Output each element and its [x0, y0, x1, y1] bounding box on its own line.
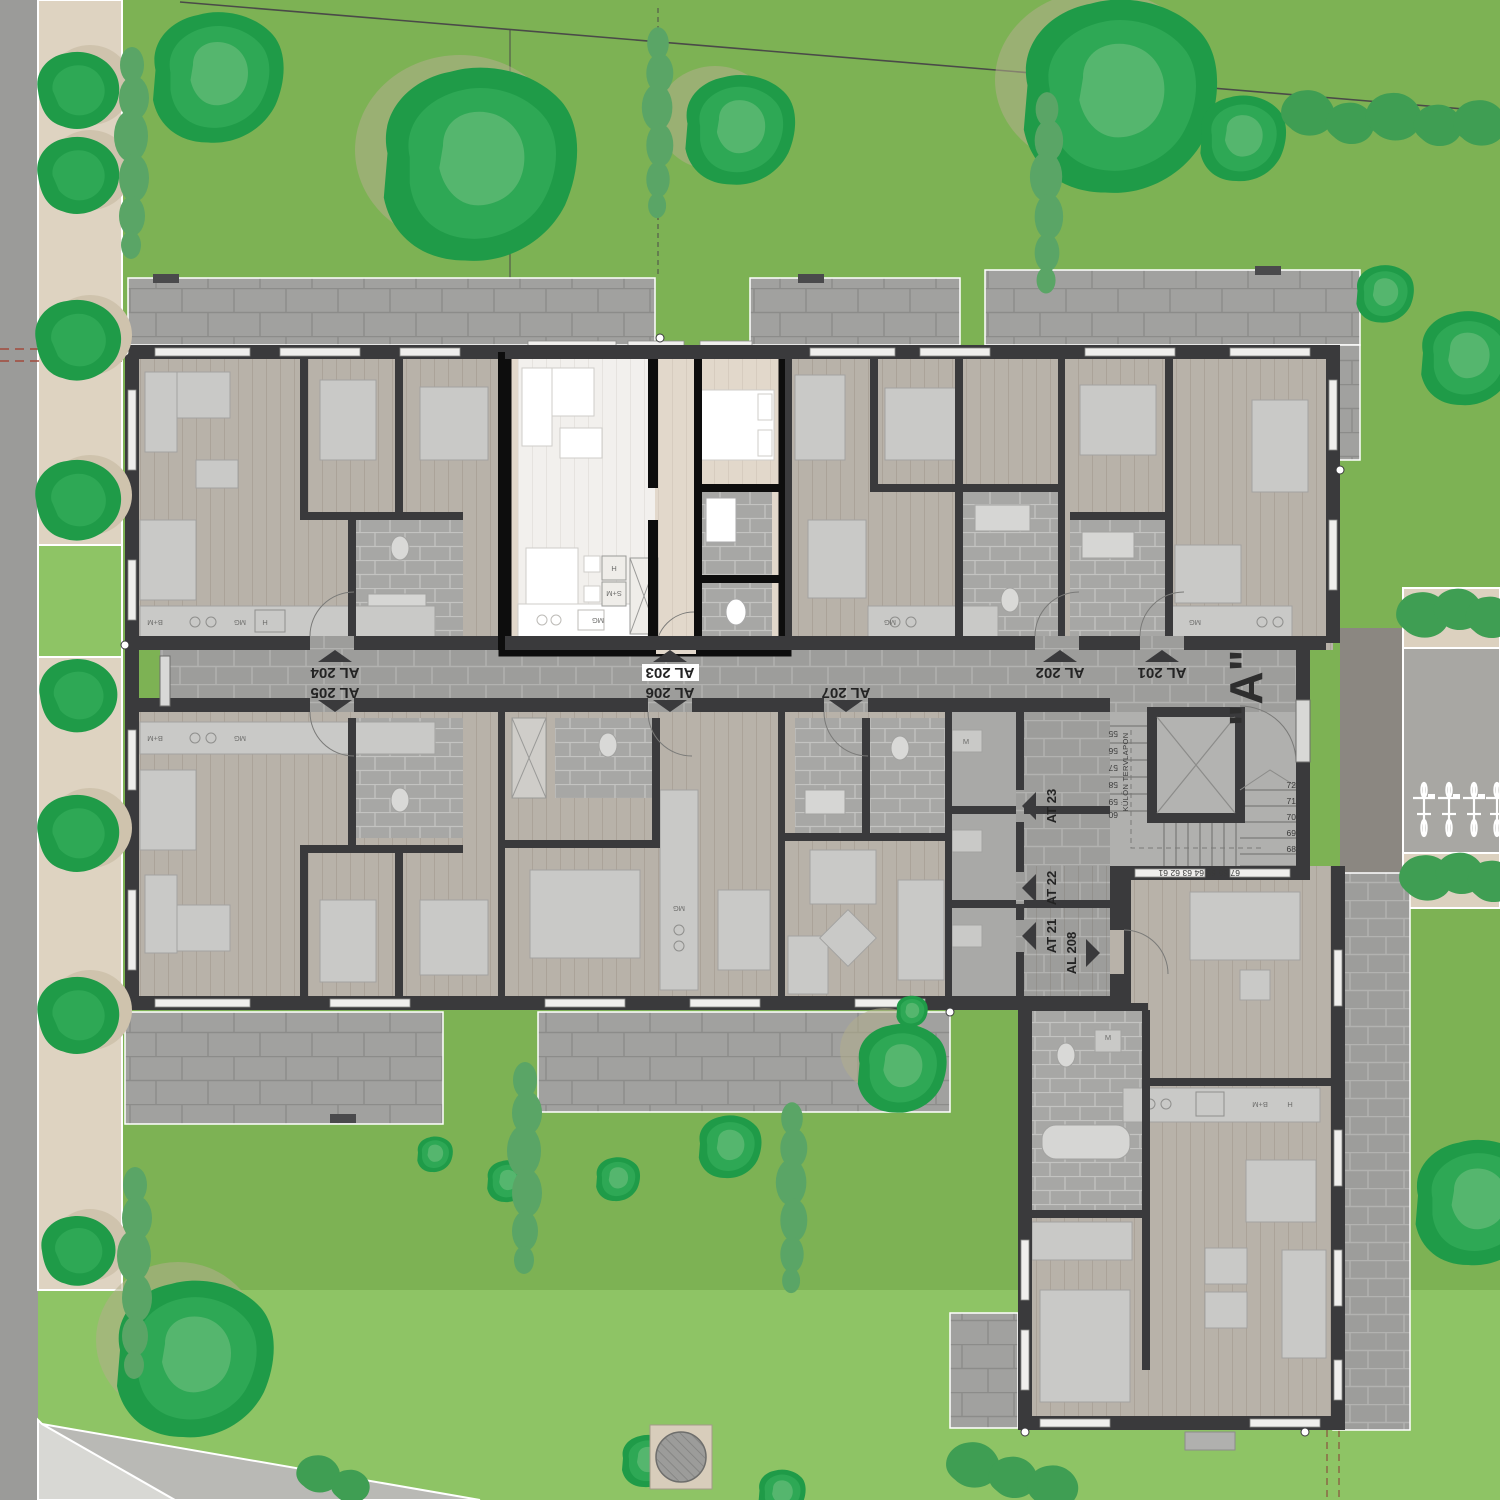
svg-text:AL 205: AL 205 — [311, 684, 360, 701]
svg-text:56: 56 — [1108, 746, 1118, 756]
svg-text:64: 64 — [1194, 868, 1204, 878]
svg-text:AL 203: AL 203 — [646, 664, 695, 681]
dining-table — [140, 770, 196, 850]
bed — [1080, 385, 1156, 455]
svg-text:AL 207: AL 207 — [822, 684, 871, 701]
svg-text:AL 201: AL 201 — [1138, 664, 1187, 681]
site-plan: AL 204 AL 205 AL 203 AL 206 AL 207 AL 20… — [0, 0, 1500, 1500]
toilet — [726, 599, 746, 625]
bed — [885, 388, 961, 460]
svg-text:AT 22: AT 22 — [1044, 871, 1059, 905]
tree — [1416, 1140, 1500, 1265]
svg-text:MG: MG — [234, 734, 246, 743]
doormat — [1255, 266, 1281, 275]
dining-table — [808, 520, 866, 598]
svg-text:AT 23: AT 23 — [1044, 789, 1059, 823]
dining-table — [1175, 545, 1241, 603]
svg-text:H: H — [1287, 1100, 1292, 1109]
svg-text:MG: MG — [1189, 618, 1201, 627]
svg-text:70: 70 — [1287, 812, 1297, 822]
bathtub — [1042, 1125, 1130, 1159]
kitchen-counter — [140, 722, 435, 754]
svg-text:H: H — [262, 618, 267, 627]
svg-text:57: 57 — [1108, 763, 1118, 773]
svg-text:M: M — [1105, 1033, 1111, 1042]
dining-table — [810, 850, 876, 904]
bed — [420, 387, 488, 460]
bed — [1190, 892, 1300, 960]
sofa — [898, 880, 944, 980]
bed — [320, 380, 376, 460]
dining-table — [1246, 1160, 1316, 1222]
svg-text:M: M — [963, 737, 969, 746]
toilet — [1057, 1043, 1075, 1067]
svg-text:MG: MG — [234, 618, 246, 627]
sofa — [795, 375, 845, 460]
svg-text:B+M: B+M — [1252, 1100, 1268, 1109]
kitchen-counter — [140, 606, 435, 638]
sofa — [1282, 1250, 1326, 1358]
svg-text:58: 58 — [1108, 780, 1118, 790]
manhole — [650, 1425, 712, 1489]
dining-table — [140, 520, 196, 600]
svg-text:55: 55 — [1108, 729, 1118, 739]
svg-text:H: H — [611, 564, 616, 573]
svg-text:62: 62 — [1170, 868, 1180, 878]
svg-text:AL 206: AL 206 — [646, 684, 695, 701]
svg-text:AL 202: AL 202 — [1036, 664, 1085, 681]
coffee-table — [560, 428, 602, 458]
entrance-label: "A" — [1220, 650, 1272, 727]
svg-text:66: 66 — [1218, 868, 1228, 878]
svg-text:69: 69 — [1287, 828, 1297, 838]
svg-text:S+M: S+M — [606, 589, 622, 598]
bed — [420, 900, 488, 975]
svg-text:AL 208: AL 208 — [1064, 932, 1079, 974]
sofa — [718, 890, 770, 970]
svg-text:AL 204: AL 204 — [310, 664, 360, 681]
svg-text:68: 68 — [1287, 844, 1297, 854]
sofa — [1252, 400, 1308, 492]
bed — [1040, 1290, 1130, 1402]
bed — [320, 900, 376, 982]
doormat — [798, 274, 824, 283]
svg-text:63: 63 — [1182, 868, 1192, 878]
svg-text:60: 60 — [1108, 810, 1118, 820]
svg-text:MG: MG — [884, 618, 896, 627]
svg-text:61: 61 — [1158, 868, 1168, 878]
svg-text:65: 65 — [1206, 868, 1216, 878]
svg-text:71: 71 — [1287, 796, 1297, 806]
svg-text:MG: MG — [673, 904, 685, 913]
doormat — [330, 1114, 356, 1123]
dining-table — [526, 548, 578, 612]
svg-text:59: 59 — [1108, 797, 1118, 807]
svg-text:MG: MG — [592, 616, 604, 625]
svg-text:B+M: B+M — [147, 618, 163, 627]
road-west — [0, 0, 38, 1500]
doormat — [153, 274, 179, 283]
svg-text:72: 72 — [1287, 780, 1297, 790]
floor-plan-drawing: AL 204 AL 205 AL 203 AL 206 AL 207 AL 20… — [0, 0, 1500, 1500]
shower — [706, 498, 736, 542]
svg-text:AT 21: AT 21 — [1044, 919, 1059, 953]
svg-text:67: 67 — [1230, 868, 1240, 878]
entrance-door[interactable] — [1296, 700, 1310, 762]
stair-note: KÜLÖN TERVLAPON — [1121, 732, 1130, 811]
kitchen-counter — [660, 790, 698, 990]
svg-text:B+M: B+M — [147, 734, 163, 743]
tree — [1421, 311, 1500, 405]
bed — [530, 870, 640, 958]
toilet — [391, 536, 409, 560]
entry-step — [1185, 1432, 1235, 1450]
unit-al203[interactable] — [505, 341, 785, 654]
